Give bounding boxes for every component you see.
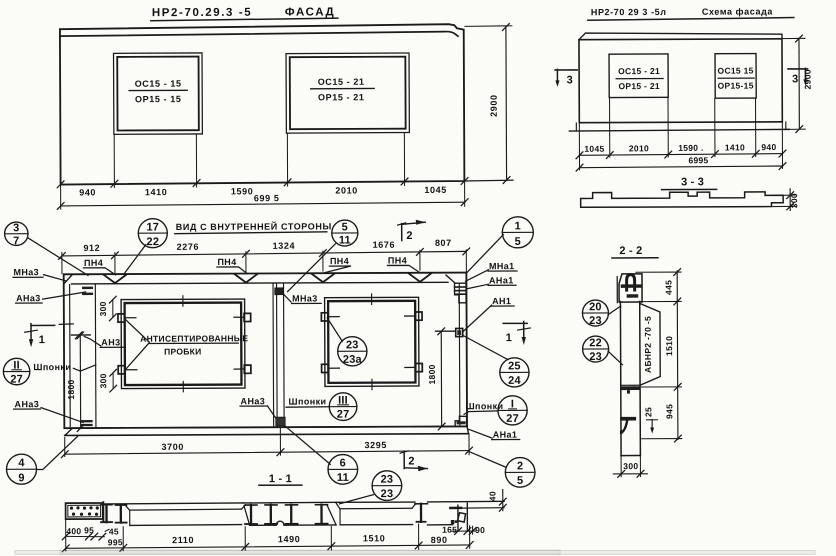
- svg-text:1410: 1410: [725, 142, 745, 152]
- svg-text:1045: 1045: [424, 185, 446, 195]
- svg-text:1: 1: [515, 220, 521, 232]
- svg-text:9: 9: [18, 472, 24, 484]
- svg-text:ОС15 - 15: ОС15 - 15: [135, 79, 182, 89]
- svg-text:1: 1: [506, 332, 512, 344]
- svg-text:27: 27: [10, 374, 23, 386]
- svg-text:1045: 1045: [584, 144, 604, 154]
- svg-text:2276: 2276: [177, 242, 199, 252]
- svg-text:ПН4: ПН4: [330, 256, 349, 266]
- svg-text:1490: 1490: [278, 534, 300, 544]
- svg-text:1: 1: [39, 334, 45, 346]
- svg-text:1590 .: 1590 .: [678, 143, 703, 153]
- svg-text:23: 23: [381, 474, 394, 486]
- svg-text:АНа1: АНа1: [489, 275, 514, 285]
- svg-text:300: 300: [789, 193, 799, 208]
- svg-text:23: 23: [381, 488, 394, 500]
- svg-text:807: 807: [435, 238, 452, 248]
- svg-text:АНа1: АНа1: [493, 430, 518, 440]
- svg-text:3 - 3: 3 - 3: [681, 176, 704, 188]
- svg-text:2010: 2010: [335, 185, 357, 195]
- svg-text:2: 2: [408, 456, 414, 468]
- svg-text:17: 17: [146, 221, 159, 233]
- svg-text:23: 23: [589, 315, 602, 327]
- svg-text:ФАСАД: ФАСАД: [285, 6, 336, 18]
- svg-text:ПН4: ПН4: [84, 258, 103, 268]
- svg-text:90: 90: [475, 525, 485, 535]
- svg-text:ПРОБКИ: ПРОБКИ: [164, 346, 202, 356]
- svg-text:ОС15 - 21: ОС15 - 21: [318, 77, 365, 87]
- svg-text:АНа3: АНа3: [16, 293, 41, 303]
- svg-text:23а: 23а: [343, 354, 363, 366]
- svg-text:300: 300: [623, 461, 638, 471]
- svg-text:3: 3: [567, 74, 573, 86]
- svg-text:1 - 1: 1 - 1: [269, 473, 292, 485]
- svg-text:22: 22: [146, 236, 159, 248]
- svg-text:1590: 1590: [231, 186, 253, 196]
- svg-text:3700: 3700: [162, 442, 184, 452]
- svg-text:2: 2: [517, 460, 523, 472]
- svg-text:2900: 2900: [489, 94, 499, 116]
- svg-text:Шпонки: Шпонки: [289, 396, 327, 406]
- svg-text:699 5: 699 5: [254, 193, 280, 203]
- svg-text:24: 24: [508, 375, 521, 387]
- svg-text:27: 27: [506, 413, 519, 425]
- svg-text:6995: 6995: [688, 155, 708, 165]
- svg-text:20: 20: [589, 301, 602, 313]
- svg-text:27: 27: [337, 409, 350, 421]
- svg-text:ОР15 - 21: ОР15 - 21: [618, 81, 659, 91]
- svg-text:АН3: АН3: [101, 337, 120, 347]
- svg-text:ВИД С ВНУТРЕННЕЙ СТОРОНЫ: ВИД С ВНУТРЕННЕЙ СТОРОНЫ: [176, 220, 332, 232]
- svg-text:7: 7: [13, 235, 19, 247]
- svg-text:1510: 1510: [363, 533, 385, 543]
- svg-text:940: 940: [79, 187, 96, 197]
- svg-text:2: 2: [406, 230, 412, 242]
- svg-text:25: 25: [508, 360, 521, 372]
- svg-text:400: 400: [66, 526, 81, 536]
- svg-text:3295: 3295: [364, 440, 386, 450]
- svg-text:95: 95: [84, 525, 94, 535]
- svg-text:165: 165: [442, 525, 457, 535]
- svg-text:6: 6: [340, 457, 346, 469]
- svg-text:ПН4: ПН4: [388, 255, 407, 265]
- svg-text:45: 45: [109, 527, 119, 537]
- svg-text:11: 11: [337, 472, 349, 484]
- svg-text:АНа3: АНа3: [15, 399, 40, 409]
- svg-text:ОР15-15: ОР15-15: [718, 81, 754, 91]
- svg-text:ОС15 15: ОС15 15: [718, 66, 754, 76]
- svg-text:3: 3: [792, 73, 798, 85]
- svg-text:НР2-70 29 3 -5л: НР2-70 29 3 -5л: [591, 7, 667, 17]
- svg-text:912: 912: [83, 243, 100, 253]
- svg-text:40: 40: [487, 491, 497, 501]
- svg-text:НР2-70.29.3 -5: НР2-70.29.3 -5: [152, 7, 252, 19]
- svg-text:АН1: АН1: [492, 296, 511, 306]
- svg-text:945: 945: [664, 404, 674, 419]
- svg-text:МНа1: МНа1: [489, 261, 515, 271]
- svg-text:1800: 1800: [427, 364, 437, 384]
- svg-text:1410: 1410: [145, 187, 167, 197]
- svg-text:300: 300: [98, 301, 108, 316]
- svg-text:3: 3: [13, 222, 19, 234]
- svg-text:ОС15 - 21: ОС15 - 21: [618, 66, 660, 76]
- svg-text:22: 22: [589, 337, 602, 349]
- svg-text:1510: 1510: [664, 336, 674, 356]
- svg-text:ОР15 - 15: ОР15 - 15: [135, 94, 181, 104]
- svg-text:Схема фасада: Схема фасада: [702, 6, 774, 16]
- svg-text:940: 940: [761, 142, 776, 152]
- svg-text:МНа3: МНа3: [13, 267, 39, 277]
- svg-text:23: 23: [589, 351, 602, 363]
- svg-text:МНа3: МНа3: [292, 293, 318, 303]
- svg-text:5: 5: [342, 221, 348, 233]
- svg-text:23: 23: [346, 339, 359, 351]
- svg-text:ОР15 - 21: ОР15 - 21: [318, 92, 364, 102]
- svg-text:2 - 2: 2 - 2: [619, 245, 642, 257]
- svg-text:Шпонки: Шпонки: [33, 362, 71, 372]
- svg-text:ПН4: ПН4: [217, 257, 236, 267]
- svg-text:4: 4: [18, 457, 25, 469]
- svg-text:11: 11: [339, 234, 351, 246]
- svg-text:2010: 2010: [629, 143, 649, 153]
- svg-text:1676: 1676: [373, 240, 395, 250]
- svg-text:890: 890: [431, 535, 448, 545]
- svg-text:2110: 2110: [172, 535, 194, 545]
- svg-text:АБНР2 -70 -5: АБНР2 -70 -5: [643, 316, 653, 373]
- svg-text:995: 995: [108, 537, 123, 547]
- svg-text:25: 25: [643, 407, 653, 417]
- svg-text:5: 5: [517, 475, 523, 487]
- svg-text:АНа3: АНа3: [241, 396, 266, 406]
- svg-text:445: 445: [664, 280, 674, 295]
- svg-text:1800: 1800: [66, 379, 76, 399]
- svg-text:2900: 2900: [803, 69, 813, 89]
- svg-text:АНТИСЕПТИРОВАННЫЕ: АНТИСЕПТИРОВАННЫЕ: [140, 333, 248, 343]
- svg-text:300: 300: [98, 373, 108, 388]
- svg-text:1324: 1324: [273, 241, 295, 251]
- svg-text:5: 5: [515, 236, 521, 248]
